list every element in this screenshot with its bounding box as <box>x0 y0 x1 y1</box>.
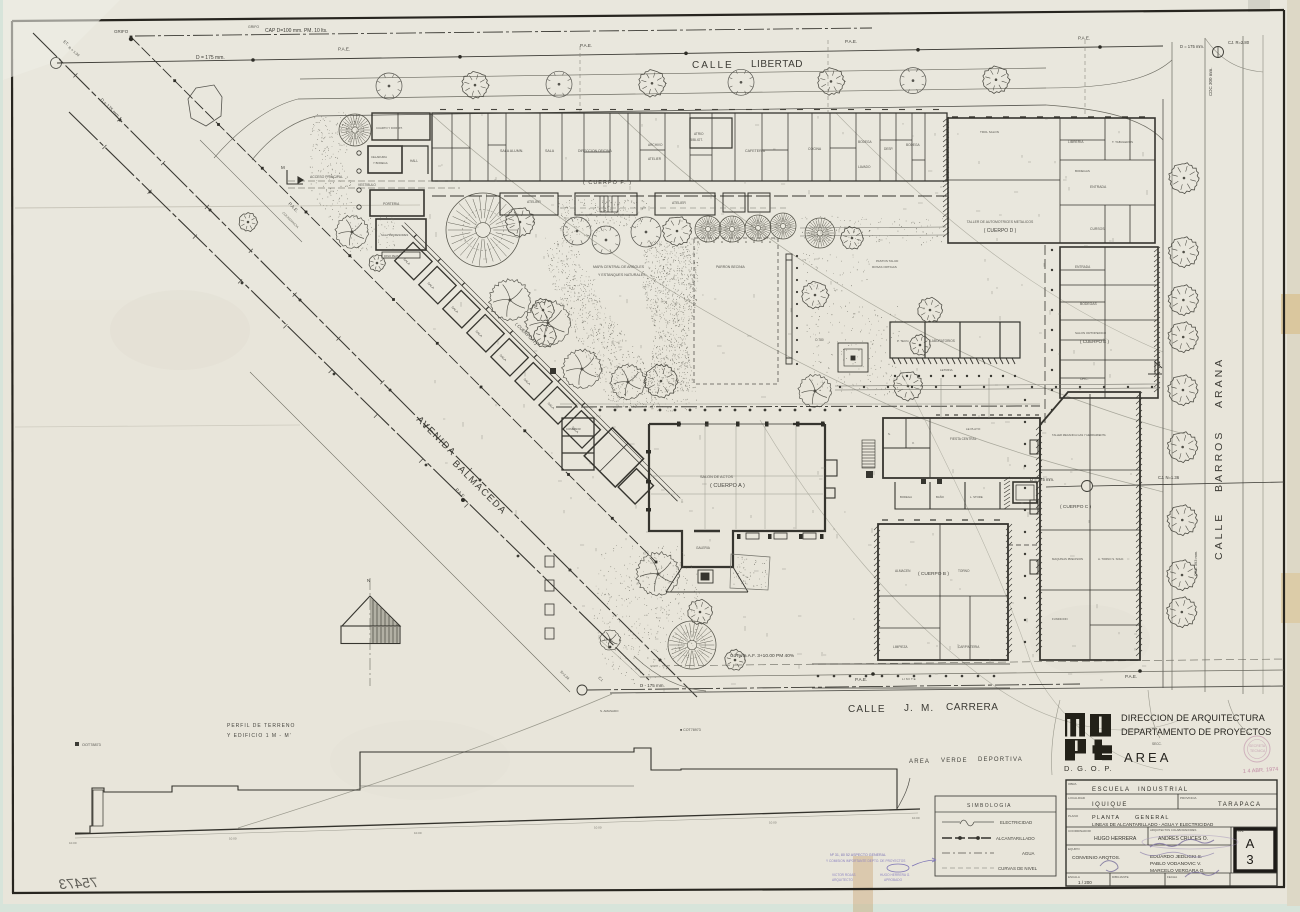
svg-text:Y COMISION IMPORTANTE DEPTO. D: Y COMISION IMPORTANTE DEPTO. DE PROYECTO… <box>826 859 905 863</box>
svg-text:Y ESTANQUES NATURALES: Y ESTANQUES NATURALES <box>598 273 646 277</box>
svg-text:ACCESO PRINCIPAL: ACCESO PRINCIPAL <box>310 175 343 179</box>
svg-text:FECHA: FECHA <box>1167 875 1177 879</box>
svg-text:ARANA: ARANA <box>1213 357 1225 408</box>
svg-text:LOCALIDAD: LOCALIDAD <box>1068 796 1086 800</box>
svg-text:CCC 393 mm.: CCC 393 mm. <box>1193 551 1198 576</box>
svg-text:CALLE: CALLE <box>692 60 734 71</box>
svg-text:BODEGAS: BODEGAS <box>1075 169 1090 173</box>
svg-text:PORTERIA: PORTERIA <box>383 202 400 206</box>
svg-text:APROBADO: APROBADO <box>884 878 903 882</box>
svg-text:( CUERPO B ): ( CUERPO B ) <box>918 571 949 577</box>
svg-text:ARCHIVO: ARCHIVO <box>648 143 663 147</box>
svg-text:N: N <box>367 578 370 583</box>
svg-text:EQUIPO: EQUIPO <box>1068 847 1080 851</box>
svg-text:MAQUINAS PRECISION: MAQUINAS PRECISION <box>1052 557 1083 561</box>
svg-text:OOT78873: OOT78873 <box>82 743 101 747</box>
svg-text:DIRECCION OFICINA: DIRECCION OFICINA <box>578 149 612 153</box>
svg-text:ARQUITECTO: ARQUITECTO <box>832 878 853 882</box>
svg-text:LABORATORIOS: LABORATORIOS <box>930 339 955 343</box>
svg-text:SALON DE ACTOS: SALON DE ACTOS <box>700 475 734 479</box>
svg-text:PASTOS TALUD: PASTOS TALUD <box>876 259 899 263</box>
svg-text:D = 175 mm.: D = 175 mm. <box>1180 44 1204 49</box>
svg-text:10.00: 10.00 <box>769 820 777 824</box>
svg-text:PARRON BECINIA: PARRON BECINIA <box>716 265 746 269</box>
svg-text:D = 175 mm.: D = 175 mm. <box>196 55 225 61</box>
svg-text:BODEGAS: BODEGAS <box>1080 302 1098 306</box>
svg-text:BODEGA: BODEGA <box>906 143 921 147</box>
svg-text:P.A.E.: P.A.E. <box>1078 35 1090 40</box>
svg-text:LE PLAYO: LE PLAYO <box>966 427 981 431</box>
svg-text:J.: J. <box>904 703 914 714</box>
svg-text:ELECTRICIDAD: ELECTRICIDAD <box>1000 820 1032 825</box>
svg-text:VESTIBULO: VESTIBULO <box>358 183 376 187</box>
svg-text:S. AMASADO: S. AMASADO <box>600 709 619 713</box>
svg-text:AREA: AREA <box>1124 750 1171 765</box>
svg-text:M.: M. <box>921 703 934 714</box>
svg-text:( CUERPO D ): ( CUERPO D ) <box>984 228 1017 234</box>
svg-text:INDUSTRIAL: INDUSTRIAL <box>1138 787 1189 793</box>
svg-text:CURVAS DE NIVEL: CURVAS DE NIVEL <box>998 866 1038 871</box>
svg-text:10.00: 10.00 <box>229 836 237 840</box>
svg-text:PROVINCIA: PROVINCIA <box>1180 796 1197 800</box>
svg-text:ROSAS ORTIGAS: ROSAS ORTIGAS <box>872 265 897 269</box>
svg-text:PABLO VODANOVIC V.: PABLO VODANOVIC V. <box>1150 861 1201 867</box>
svg-text:LAVADO: LAVADO <box>858 165 871 169</box>
svg-text:TALLER MECANICA GAS Y HERRAMIE: TALLER MECANICA GAS Y HERRAMIENTA <box>1052 433 1106 437</box>
svg-text:HUGO HERRERA G.: HUGO HERRERA G. <box>880 873 910 877</box>
svg-text:BODEGA: BODEGA <box>858 140 873 144</box>
svg-text:SALA ALUMN.: SALA ALUMN. <box>500 149 523 153</box>
svg-text:10.00: 10.00 <box>594 825 602 829</box>
svg-text:HALL: HALL <box>410 159 418 163</box>
svg-text:LIBRERIA: LIBRERIA <box>1068 140 1084 144</box>
svg-text:AGUA: AGUA <box>1022 851 1035 856</box>
svg-text:ATELIER: ATELIER <box>527 200 541 204</box>
svg-text:CdTeria A.F. 3+10.00 PM 40: CdTeria A.F. 3+10.00 PM 40% <box>730 653 795 659</box>
svg-text:P.A.E.: P.A.E. <box>338 47 350 52</box>
svg-text:LINEAS DE ALCANTARILLADO - A: LINEAS DE ALCANTARILLADO - AGUA Y ELECTR… <box>1092 822 1214 827</box>
svg-text:3: 3 <box>1246 852 1253 867</box>
svg-text:BODEGA: BODEGA <box>900 495 912 499</box>
svg-text:V.: V. <box>912 441 915 445</box>
svg-text:DIBUJANTE: DIBUJANTE <box>1112 875 1129 879</box>
svg-text:MARCELO VERGARA O.: MARCELO VERGARA O. <box>1150 868 1205 874</box>
svg-text:COCINA: COCINA <box>808 147 822 151</box>
svg-text:( CUERPO F. ): ( CUERPO F. ) <box>583 180 632 186</box>
svg-text:D. G. O. P.: D. G. O. P. <box>1064 764 1113 773</box>
svg-text:M: M <box>281 165 285 170</box>
svg-text:CONVENIO ARQTOS.: CONVENIO ARQTOS. <box>1072 855 1120 861</box>
svg-text:SECRETA: SECRETA <box>1249 744 1266 748</box>
svg-text:ATRIO: ATRIO <box>694 132 704 136</box>
svg-text:A: A <box>1246 836 1255 851</box>
svg-text:VERDE: VERDE <box>941 758 968 764</box>
svg-text:COORDINADOR: COORDINADOR <box>1068 829 1092 833</box>
svg-text:P.A.E.: P.A.E. <box>1125 674 1137 679</box>
svg-text:FIESTA CENTRAL: FIESTA CENTRAL <box>950 437 977 441</box>
svg-text:S.: S. <box>888 432 891 436</box>
svg-text:TALLER DE AUTOMOTRICES METALIC: TALLER DE AUTOMOTRICES METALICOS <box>967 220 1034 224</box>
svg-text:CELADURIA: CELADURIA <box>371 155 387 159</box>
svg-text:ARQUITECTOS COLABORADORES: ARQUITECTOS COLABORADORES <box>1150 828 1197 832</box>
svg-text:CURSOS: CURSOS <box>1090 227 1105 231</box>
svg-text:GALERIA: GALERIA <box>696 546 711 550</box>
svg-text:SALA PROFESORES: SALA PROFESORES <box>381 233 408 237</box>
svg-text:OFIC.: OFIC. <box>1080 377 1089 381</box>
svg-text:CUARTO Y DORMIT.: CUARTO Y DORMIT. <box>376 126 403 130</box>
svg-text:CAP D=100 mm. PM. 10 lts.: CAP D=100 mm. PM. 10 lts. <box>265 28 328 34</box>
svg-text:P.A.E.: P.A.E. <box>845 39 857 44</box>
svg-text:TORNO: TORNO <box>958 569 970 573</box>
svg-text:GRIFO: GRIFO <box>248 25 259 29</box>
svg-text:TECNICA: TECNICA <box>1250 749 1266 753</box>
svg-text:CAFETERIA: CAFETERIA <box>745 149 766 153</box>
svg-text:CJ. N=1.36: CJ. N=1.36 <box>1158 475 1180 480</box>
svg-text:DIRECCION DE ARQUITECTURA: DIRECCION DE ARQUITECTURA <box>1121 713 1266 723</box>
svg-text:1 / 200: 1 / 200 <box>1078 880 1092 885</box>
svg-text:DEPORTIVA: DEPORTIVA <box>978 757 1023 763</box>
svg-text:P.A.E.: P.A.E. <box>855 677 867 682</box>
svg-text:10.00: 10.00 <box>414 831 422 835</box>
svg-text:A. TORNO S. SOLD.: A. TORNO S. SOLD. <box>1098 557 1124 561</box>
svg-text:■ COT78973: ■ COT78973 <box>680 728 701 732</box>
svg-text:LIBERTAD: LIBERTAD <box>751 59 803 70</box>
svg-text:ENTRADA: ENTRADA <box>1090 185 1107 189</box>
svg-text:Nº 31, 80 52 ASPECTO GENERAL: Nº 31, 80 52 ASPECTO GENERAL <box>830 853 886 857</box>
svg-text:BAÑO: BAÑO <box>936 494 945 499</box>
svg-text:CDC 300 mm.: CDC 300 mm. <box>1208 67 1213 96</box>
svg-text:10.00: 10.00 <box>69 841 77 845</box>
svg-text:L. STORE: L. STORE <box>970 495 983 499</box>
svg-text:ESCALA: ESCALA <box>1068 875 1080 879</box>
svg-text:Y BODEGA: Y BODEGA <box>373 161 388 165</box>
svg-text:AREA: AREA <box>909 759 930 765</box>
svg-text:BIBLIOT.: BIBLIOT. <box>690 138 703 142</box>
svg-text:L I M I T E: L I M I T E <box>902 677 916 681</box>
svg-text:S I M B O L O G I A: S I M B O L O G I A <box>967 803 1011 809</box>
svg-text:D - 175 mm.: D - 175 mm. <box>640 683 665 688</box>
svg-text:P. TECN.: P. TECN. <box>897 339 909 343</box>
svg-text:LETRINA: LETRINA <box>940 368 953 372</box>
svg-text:ESCUELA: ESCUELA <box>1092 787 1131 793</box>
svg-text:FUNDICION: FUNDICION <box>1052 617 1068 621</box>
svg-text:SALA: SALA <box>545 149 555 153</box>
svg-text:SALON ORTOPEDICO: SALON ORTOPEDICO <box>1075 331 1107 335</box>
svg-text:ENTRADA: ENTRADA <box>1075 265 1091 269</box>
svg-text:( CUERPO E ): ( CUERPO E ) <box>1080 339 1110 344</box>
svg-text:OBRA: OBRA <box>1068 782 1077 786</box>
svg-text:TROL SALON: TROL SALON <box>980 130 999 134</box>
svg-text:CARPINTERIA: CARPINTERIA <box>958 645 980 649</box>
svg-text:Y EDIFICIO 1 M - M’: Y EDIFICIO 1 M - M’ <box>227 733 292 739</box>
svg-text:PLANTA: PLANTA <box>1092 815 1120 821</box>
svg-text:LIMPIEZA: LIMPIEZA <box>893 645 908 649</box>
svg-text:COMEDOR: COMEDOR <box>566 427 581 431</box>
svg-text:TARAPACA: TARAPACA <box>1218 802 1261 808</box>
svg-text:GRIFO: GRIFO <box>114 29 129 34</box>
svg-text:ATELIER: ATELIER <box>648 157 662 161</box>
svg-text:P.A.E.: P.A.E. <box>580 43 592 48</box>
svg-text:ALCANTARILLADO: ALCANTARILLADO <box>996 836 1035 841</box>
svg-text:75473: 75473 <box>58 874 98 892</box>
svg-text:PERFIL DE TERRENO: PERFIL DE TERRENO <box>227 723 295 729</box>
svg-text:PASO PEAT.: PASO PEAT. <box>384 254 399 258</box>
svg-text:HUGO HERRERA: HUGO HERRERA <box>1094 836 1137 842</box>
svg-text:CALLE: CALLE <box>1213 512 1225 560</box>
svg-text:MAPA CENTRAL DE ARBOLES: MAPA CENTRAL DE ARBOLES <box>593 265 645 269</box>
svg-text:T. TABULEROS: T. TABULEROS <box>1112 140 1133 144</box>
svg-text:IQUIQUE: IQUIQUE <box>1092 802 1128 808</box>
svg-text:CJ. R=2.80: CJ. R=2.80 <box>1228 40 1250 45</box>
svg-text:VICTOR ROJAS: VICTOR ROJAS <box>832 873 856 877</box>
svg-text:BARROS: BARROS <box>1213 430 1225 492</box>
svg-text:GENERAL: GENERAL <box>1135 815 1170 821</box>
svg-text:ATELIER: ATELIER <box>672 201 686 205</box>
svg-text:DESP.: DESP. <box>884 147 893 151</box>
svg-text:ALMACEN: ALMACEN <box>895 569 911 573</box>
svg-text:DEPARTAMENTO DE PROYECTOS: DEPARTAMENTO DE PROYECTOS <box>1121 727 1271 737</box>
svg-text:CALLE: CALLE <box>848 704 886 715</box>
svg-text:PLANO: PLANO <box>1068 814 1079 818</box>
svg-text:( CUERPO A ): ( CUERPO A ) <box>710 483 745 489</box>
svg-text:SECC.: SECC. <box>1152 742 1162 746</box>
svg-text:CARRERA: CARRERA <box>946 702 998 713</box>
svg-text:( CUERPO C ): ( CUERPO C ) <box>1060 504 1092 510</box>
svg-text:10.00: 10.00 <box>912 816 920 820</box>
svg-text:O.780: O.780 <box>815 338 824 342</box>
